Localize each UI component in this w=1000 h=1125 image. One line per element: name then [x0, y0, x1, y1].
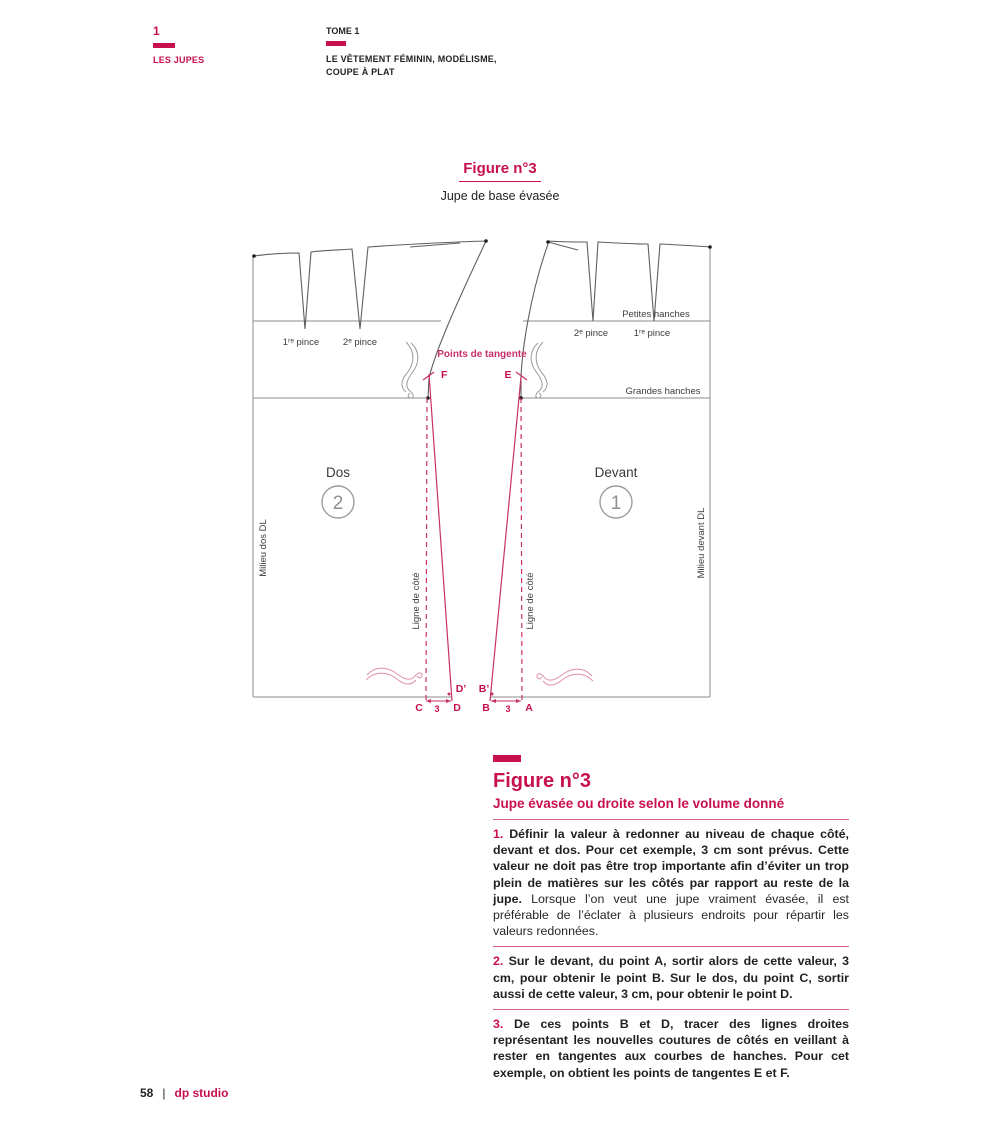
- dos-side-seam-curve: [428, 241, 486, 398]
- milieu-dos-label: Milieu dos DL: [258, 519, 269, 577]
- devant-measure-arrow-left: [491, 699, 496, 703]
- point-B-prime-label: B’: [479, 683, 490, 695]
- dos-dart2-label: 2ᵉ pince: [343, 337, 377, 348]
- dos-point-d-prime-dot: [448, 693, 451, 696]
- dos-measure-label: 3: [434, 704, 439, 714]
- devant-measure-label: 3: [505, 704, 510, 714]
- ligne-cote-devant-label: Ligne de côté: [525, 572, 536, 629]
- chapter-title: LES JUPES: [153, 55, 204, 65]
- description-subtitle: Jupe évasée ou droite selon le volume do…: [493, 796, 849, 819]
- dos-pattern: 1ʳᵉ pince 2ᵉ pince Dos 2 Milieu dos DL L…: [252, 239, 488, 714]
- footer-separator: |: [162, 1086, 165, 1100]
- dos-original-side-dashed: [426, 398, 427, 700]
- tome-header: TOME 1 LE VÊTEMENT FÉMININ, MODÉLISME, C…: [326, 26, 497, 79]
- french-curve-ruler-dos: [402, 342, 418, 398]
- petites-hanches-label: Petites hanches: [622, 309, 690, 320]
- french-curve-ruler-devant-hem: [537, 669, 593, 685]
- skirt-pattern-diagram: 1ʳᵉ pince 2ᵉ pince Dos 2 Milieu dos DL L…: [0, 228, 1000, 728]
- dos-title: Dos: [326, 465, 350, 480]
- devant-dart2-label: 2ᵉ pince: [574, 328, 608, 339]
- devant-waist-correction-line: [548, 242, 578, 250]
- point-E-label: E: [504, 369, 511, 381]
- point-F-label: F: [441, 369, 448, 381]
- page-footer: 58 | dp studio: [140, 1086, 228, 1100]
- devant-measure-arrow-right: [516, 699, 521, 703]
- figure-caption: Figure n°3 Jupe de base évasée: [0, 160, 1000, 203]
- brand-name: dp studio: [174, 1086, 228, 1100]
- point-A-label: A: [525, 702, 533, 714]
- point-C-label: C: [415, 702, 423, 714]
- tome-label: TOME 1: [326, 26, 497, 36]
- tome-accent-bar: [326, 41, 346, 46]
- figure-caption-subtitle: Jupe de base évasée: [0, 189, 1000, 203]
- devant-corner-dot: [708, 245, 712, 249]
- step-1-text-regular: Lorsque l’on veut une jupe vraiment évas…: [493, 892, 849, 938]
- dos-measure-arrow-right: [446, 699, 451, 703]
- step-2-text-bold: Sur le devant, du point A, sortir alors …: [493, 954, 849, 1000]
- devant-point-b-prime-dot: [491, 693, 494, 696]
- book-title-line2: COUPE À PLAT: [326, 66, 497, 79]
- devant-side-top-dot: [546, 240, 550, 244]
- grandes-hanches-label: Grandes hanches: [626, 386, 701, 397]
- chapter-accent-bar: [153, 43, 175, 48]
- step-3: 3. De ces points B et D, tracer des lign…: [493, 1009, 849, 1088]
- french-curve-ruler-devant: [531, 342, 547, 398]
- point-B-label: B: [482, 702, 490, 714]
- book-title: LE VÊTEMENT FÉMININ, MODÉLISME, COUPE À …: [326, 53, 497, 79]
- description-accent-bar: [493, 755, 521, 762]
- step-3-text-bold: De ces points B et D, tracer des lignes …: [493, 1017, 849, 1080]
- devant-dart1-label: 1ʳᵉ pince: [634, 328, 670, 339]
- step-2: 2. Sur le devant, du point A, sortir alo…: [493, 946, 849, 1009]
- step-2-number: 2.: [493, 954, 503, 968]
- devant-pattern: Petites hanches 2ᵉ pince 1ʳᵉ pince Grand…: [479, 240, 712, 714]
- dos-waist-and-darts: [254, 241, 486, 329]
- points-de-tangente-label: Points de tangente: [437, 349, 527, 360]
- devant-original-side-dashed: [521, 398, 522, 700]
- milieu-devant-label: Milieu devant DL: [696, 508, 707, 579]
- point-D-prime-label: D’: [456, 683, 467, 695]
- figure-description: Figure n°3 Jupe évasée ou droite selon l…: [493, 755, 849, 1088]
- step-1: 1. Définir la valeur à redonner au nivea…: [493, 819, 849, 946]
- devant-new-side-seam: [490, 377, 521, 701]
- point-D-label: D: [453, 702, 461, 714]
- dos-dart1-label: 1ʳᵉ pince: [283, 337, 319, 348]
- description-title: Figure n°3: [493, 770, 849, 793]
- figure-caption-title: Figure n°3: [459, 160, 541, 182]
- book-title-line1: LE VÊTEMENT FÉMININ, MODÉLISME,: [326, 53, 497, 66]
- step-1-number: 1.: [493, 827, 503, 841]
- french-curve-ruler-dos-hem: [366, 668, 422, 684]
- devant-number: 1: [611, 493, 622, 514]
- ligne-cote-dos-label: Ligne de côté: [411, 572, 422, 629]
- dos-measure-arrow-left: [426, 699, 431, 703]
- chapter-number: 1: [153, 24, 204, 38]
- step-3-number: 3.: [493, 1017, 503, 1031]
- dos-number: 2: [333, 493, 344, 514]
- chapter-header: 1 LES JUPES: [153, 24, 204, 65]
- devant-title: Devant: [595, 465, 638, 480]
- dos-corner-dot: [252, 254, 256, 258]
- page-number: 58: [140, 1086, 153, 1100]
- dos-new-side-seam: [429, 374, 452, 701]
- dos-side-top-dot: [484, 239, 488, 243]
